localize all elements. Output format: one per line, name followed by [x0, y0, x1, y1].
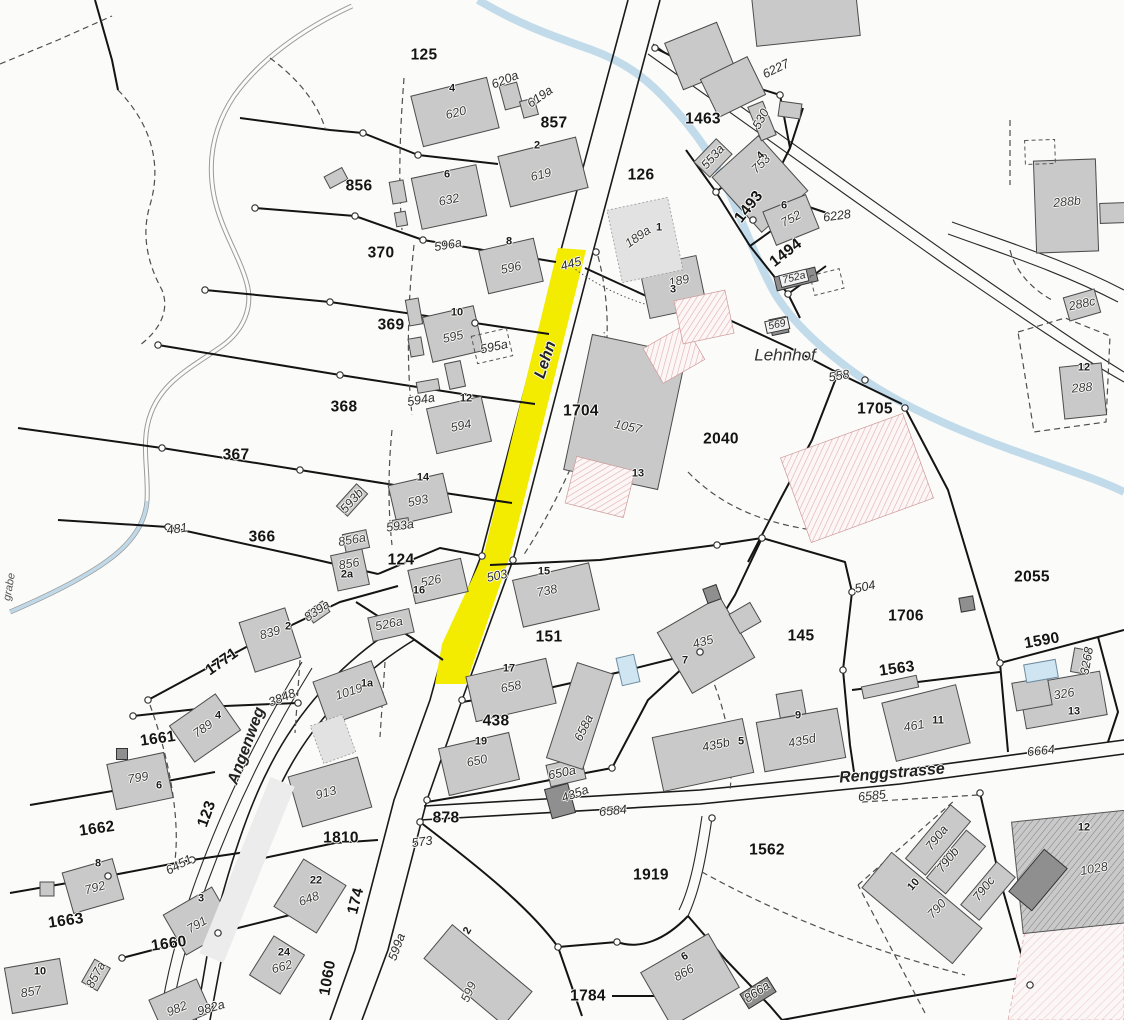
boundary-node	[479, 553, 485, 559]
building-footprint	[4, 958, 67, 1013]
boundary-node	[119, 955, 125, 961]
building-footprint	[424, 925, 532, 1020]
boundary-node	[360, 130, 366, 136]
boundary-node	[902, 405, 908, 411]
boundary-node	[759, 535, 765, 541]
boundary-node	[145, 697, 151, 703]
building-footprint	[310, 714, 356, 763]
boundary-node	[327, 299, 333, 305]
boundary-node	[130, 713, 136, 719]
pool	[616, 654, 640, 685]
map-canvas	[0, 0, 1124, 1020]
boundary-node	[215, 930, 221, 936]
building-footprint	[199, 777, 294, 963]
building-footprint	[274, 859, 346, 933]
boundary-node	[777, 92, 783, 98]
boundary-node	[459, 697, 465, 703]
buildings-layer	[4, 0, 1124, 1020]
boundary-node	[202, 287, 208, 293]
boundary-node	[420, 237, 426, 243]
building-footprint	[422, 306, 483, 363]
building-footprint	[388, 473, 452, 525]
building-footprint	[1063, 289, 1100, 321]
boundary-node	[337, 372, 343, 378]
building-footprint	[288, 757, 372, 827]
building-footprint	[466, 658, 556, 721]
building-footprint	[1059, 363, 1106, 419]
building-footprint	[444, 361, 465, 390]
grabe-stream	[10, 501, 147, 612]
building-footprint	[882, 685, 970, 762]
boundary-node	[609, 765, 615, 771]
building-footprint	[331, 549, 370, 591]
building-footprint	[641, 934, 740, 1020]
boundary-node	[159, 445, 165, 451]
boundary-node	[652, 45, 658, 51]
boundary-node	[849, 589, 855, 595]
boundary-node	[750, 217, 756, 223]
building-footprint	[1100, 203, 1124, 224]
building-footprint	[427, 396, 492, 453]
boundary-node	[510, 557, 516, 563]
building-footprint	[324, 168, 348, 189]
building-footprint	[959, 596, 975, 612]
building-footprint	[756, 708, 845, 771]
boundary-node	[155, 342, 161, 348]
boundary-node	[714, 542, 720, 548]
boundary-node	[709, 815, 715, 821]
building-footprint	[306, 601, 330, 623]
building-footprint	[861, 675, 918, 698]
building-footprint	[748, 101, 776, 140]
building-footprint	[652, 719, 753, 792]
building-footprint	[769, 316, 789, 335]
boundary-node	[713, 189, 719, 195]
building-footprint	[1071, 648, 1090, 674]
building-footprint	[416, 379, 440, 394]
boundary-node	[835, 370, 841, 376]
building-footprint	[752, 0, 860, 46]
building-footprint	[342, 530, 369, 553]
building-footprint	[607, 197, 683, 282]
building-footprint	[336, 484, 367, 516]
building-footprint	[405, 298, 422, 326]
hatched-building	[781, 413, 934, 542]
building-footprint	[250, 936, 305, 994]
boundary-node	[862, 377, 868, 383]
boundary-node	[415, 152, 421, 158]
boundary-node	[252, 205, 258, 211]
boundary-node	[295, 700, 301, 706]
building-footprint	[392, 518, 409, 531]
building-footprint	[546, 663, 613, 770]
boundary-node	[165, 524, 171, 530]
building-footprint	[62, 859, 124, 914]
boundary-node	[697, 649, 703, 655]
lehn-road-west-edge	[330, 0, 628, 1020]
building-footprint	[239, 608, 301, 672]
boundary-node	[555, 944, 561, 950]
building-footprint	[82, 959, 111, 991]
boundary-node	[297, 467, 303, 473]
building-footprint	[778, 101, 802, 119]
building-footprint	[411, 77, 499, 146]
boundary-node	[417, 819, 423, 825]
boundary-node	[785, 291, 791, 297]
boundary-node	[614, 939, 620, 945]
building-footprint	[169, 694, 240, 762]
building-footprint	[479, 238, 543, 293]
boundary-node	[997, 660, 1003, 666]
boundary-node	[977, 790, 983, 796]
building-footprint	[776, 690, 806, 718]
building-footprint	[961, 862, 1015, 920]
driveway-1562-a	[688, 818, 712, 916]
building-footprint	[513, 563, 600, 627]
building-footprint	[408, 558, 468, 603]
boundary-node	[1027, 982, 1033, 988]
boundary-node	[472, 320, 478, 326]
cadastral-map[interactable]: LehnRenggstrasseAngenwegLehnhofgrabe1258…	[0, 0, 1124, 1020]
building-footprint	[499, 82, 523, 110]
driveway-1562-b	[679, 816, 702, 910]
building-footprint	[408, 337, 424, 357]
building-footprint	[439, 733, 520, 796]
building-footprint	[411, 165, 486, 230]
boundary-node	[352, 213, 358, 219]
boundary-node	[840, 667, 846, 673]
boundary-node	[593, 249, 599, 255]
boundary-node	[105, 873, 111, 879]
building-footprint	[107, 752, 173, 809]
boundary-node	[424, 797, 430, 803]
building-footprint	[520, 98, 539, 118]
building-footprint	[389, 180, 407, 204]
building-footprint	[740, 977, 776, 1008]
building-footprint	[1033, 159, 1098, 253]
building-footprint	[313, 661, 387, 725]
building-footprint	[394, 211, 407, 227]
building-footprint	[117, 749, 128, 760]
boundary-node	[189, 857, 195, 863]
building-footprint	[40, 882, 54, 896]
